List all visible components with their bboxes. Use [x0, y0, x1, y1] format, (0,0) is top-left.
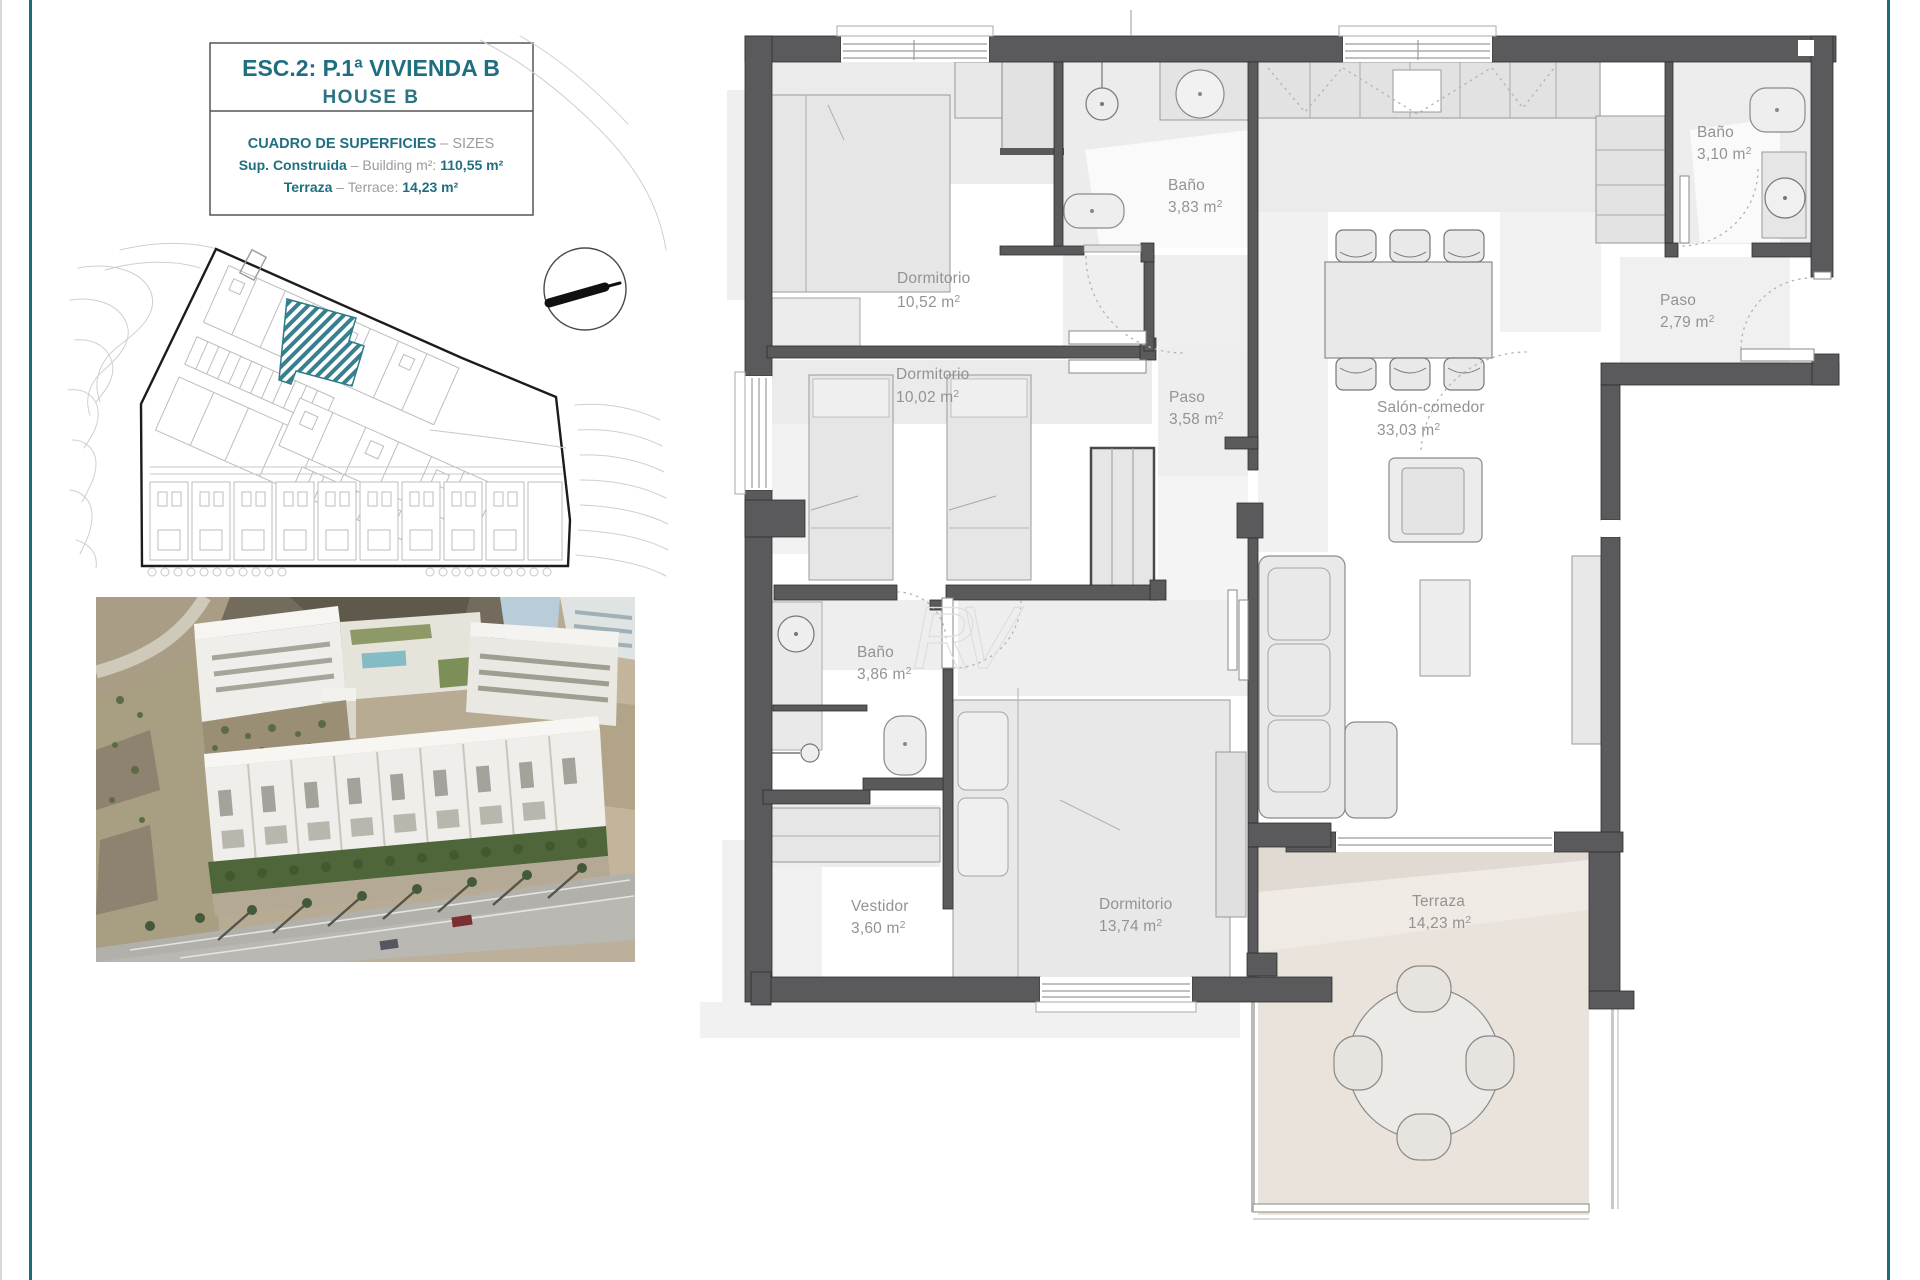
svg-text:Baño: Baño — [857, 644, 894, 661]
svg-text:Paso: Paso — [1660, 292, 1696, 309]
svg-text:3,58 m2: 3,58 m2 — [1169, 410, 1224, 428]
svg-text:Dormitorio: Dormitorio — [896, 366, 969, 383]
svg-text:3,86 m2: 3,86 m2 — [857, 665, 912, 683]
svg-text:3,10 m2: 3,10 m2 — [1697, 145, 1752, 163]
svg-text:10,52 m2: 10,52 m2 — [897, 293, 960, 311]
svg-text:Terraza: Terraza — [1412, 893, 1465, 910]
svg-text:Dormitorio: Dormitorio — [1099, 896, 1172, 913]
svg-text:Dormitorio: Dormitorio — [897, 270, 970, 287]
svg-text:13,74 m2: 13,74 m2 — [1099, 917, 1162, 935]
svg-text:33,03 m2: 33,03 m2 — [1377, 421, 1440, 439]
svg-text:Sup. Construida – Building m²:: Sup. Construida – Building m²: 110,55 m² — [239, 157, 504, 173]
svg-text:3,60 m2: 3,60 m2 — [851, 919, 906, 937]
svg-text:Paso: Paso — [1169, 389, 1205, 406]
svg-text:Baño: Baño — [1168, 177, 1205, 194]
svg-text:Baño: Baño — [1697, 124, 1734, 141]
svg-text:10,02 m2: 10,02 m2 — [896, 388, 959, 406]
svg-text:Salón-comedor: Salón-comedor — [1377, 399, 1485, 416]
svg-text:V: V — [958, 588, 1024, 687]
svg-text:2,79 m2: 2,79 m2 — [1660, 313, 1715, 331]
svg-text:HOUSE B: HOUSE B — [322, 87, 419, 108]
svg-text:14,23 m2: 14,23 m2 — [1408, 914, 1471, 932]
svg-text:CUADRO DE SUPERFICIES – SIZES: CUADRO DE SUPERFICIES – SIZES — [248, 136, 495, 152]
svg-text:Vestidor: Vestidor — [851, 898, 909, 915]
svg-text:3,83 m2: 3,83 m2 — [1168, 198, 1223, 216]
svg-text:ESC.2: P.1ª VIVIENDA B: ESC.2: P.1ª VIVIENDA B — [242, 55, 500, 81]
svg-text:Terraza – Terrace: 14,23 m²: Terraza – Terrace: 14,23 m² — [284, 179, 459, 195]
